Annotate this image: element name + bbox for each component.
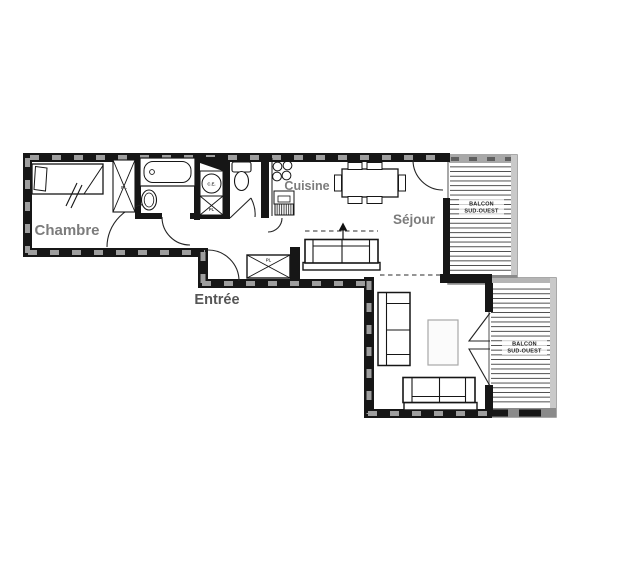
washbasin [142,190,157,210]
pillow [34,167,47,192]
chair [399,175,406,191]
stove-burner [273,172,282,181]
arrow-up-icon [339,223,347,231]
bifold-door-balcony2-upper [469,313,490,341]
door-leaf-wc [230,198,251,218]
wall-wc-kitchen [261,156,269,218]
sofa-bottom-base [404,403,477,411]
balcony-southwest-1: BALCON SUD-OUEST [448,155,517,284]
wall-balcony1-divider [443,198,450,276]
room-label-entree: Entrée [194,292,239,308]
chair [367,197,382,204]
water-heater-label: C.E. [207,182,215,187]
hall-closet: PL [200,196,223,215]
entree-closet: PL [247,255,290,278]
chambre-closet: PL [113,160,135,212]
water-heater: C.E. [200,171,223,196]
kitchen-sink [275,204,294,215]
duct-shaft [200,157,223,171]
wall-balcony1-top-stub [443,153,450,162]
door-arc-kitchen [268,218,282,232]
room-label-chambre: Chambre [34,222,99,239]
sofa-bottom [403,378,477,411]
bathtub [140,158,195,186]
bed [32,164,103,208]
balcony1-label-line1: BALCON [469,202,494,208]
toilet-bowl [235,172,249,191]
door-arc-balcony1 [413,160,443,190]
chair [348,163,362,170]
balcony2-label-line2: SUD-OUEST [507,349,542,355]
wall-bath-bottom-left [135,213,162,219]
balcony-southwest-2: BALCON SUD-OUEST [489,278,556,417]
wall-balcony2-divider-bottom [485,385,493,413]
hall-closet-label: PL [209,207,215,212]
stove-burner [273,162,282,171]
toilet-tank [232,162,251,172]
door-arc-entrance [208,250,239,281]
entree-closet-label: PL [266,258,272,263]
room-label-cuisine: Cuisine [284,179,329,193]
balcony1-label-line2: SUD-OUEST [464,209,499,215]
door-arc-wc [251,198,255,217]
wall-heater-wc [223,156,230,216]
balcony2-right-rail [550,278,556,417]
coffee-table [428,320,458,365]
chambre-closet-label: PL [121,185,127,190]
balcony1-decking [450,166,511,274]
sofa-bed [303,240,380,271]
balcony2-label-line1: BALCON [512,342,537,348]
wall-balcony2-divider-top [485,283,493,312]
dining-table [342,169,398,197]
room-label-sejour: Séjour [393,212,436,227]
sofa-left [378,293,410,366]
chair [348,197,362,204]
stove-burner [283,161,292,170]
chair [367,163,382,170]
toilet [232,162,251,191]
balcony1-right-rail [511,155,517,284]
door-arc-bathroom [162,217,190,245]
balcony2-top-rail [489,278,556,283]
floor-plan-drawing: BALCON SUD-OUEST BALCON SUD-OUEST [0,0,633,580]
dining-set [335,163,406,204]
chair [335,175,342,191]
floor-plan-canvas: BALCON SUD-OUEST BALCON SUD-OUEST [0,0,633,580]
